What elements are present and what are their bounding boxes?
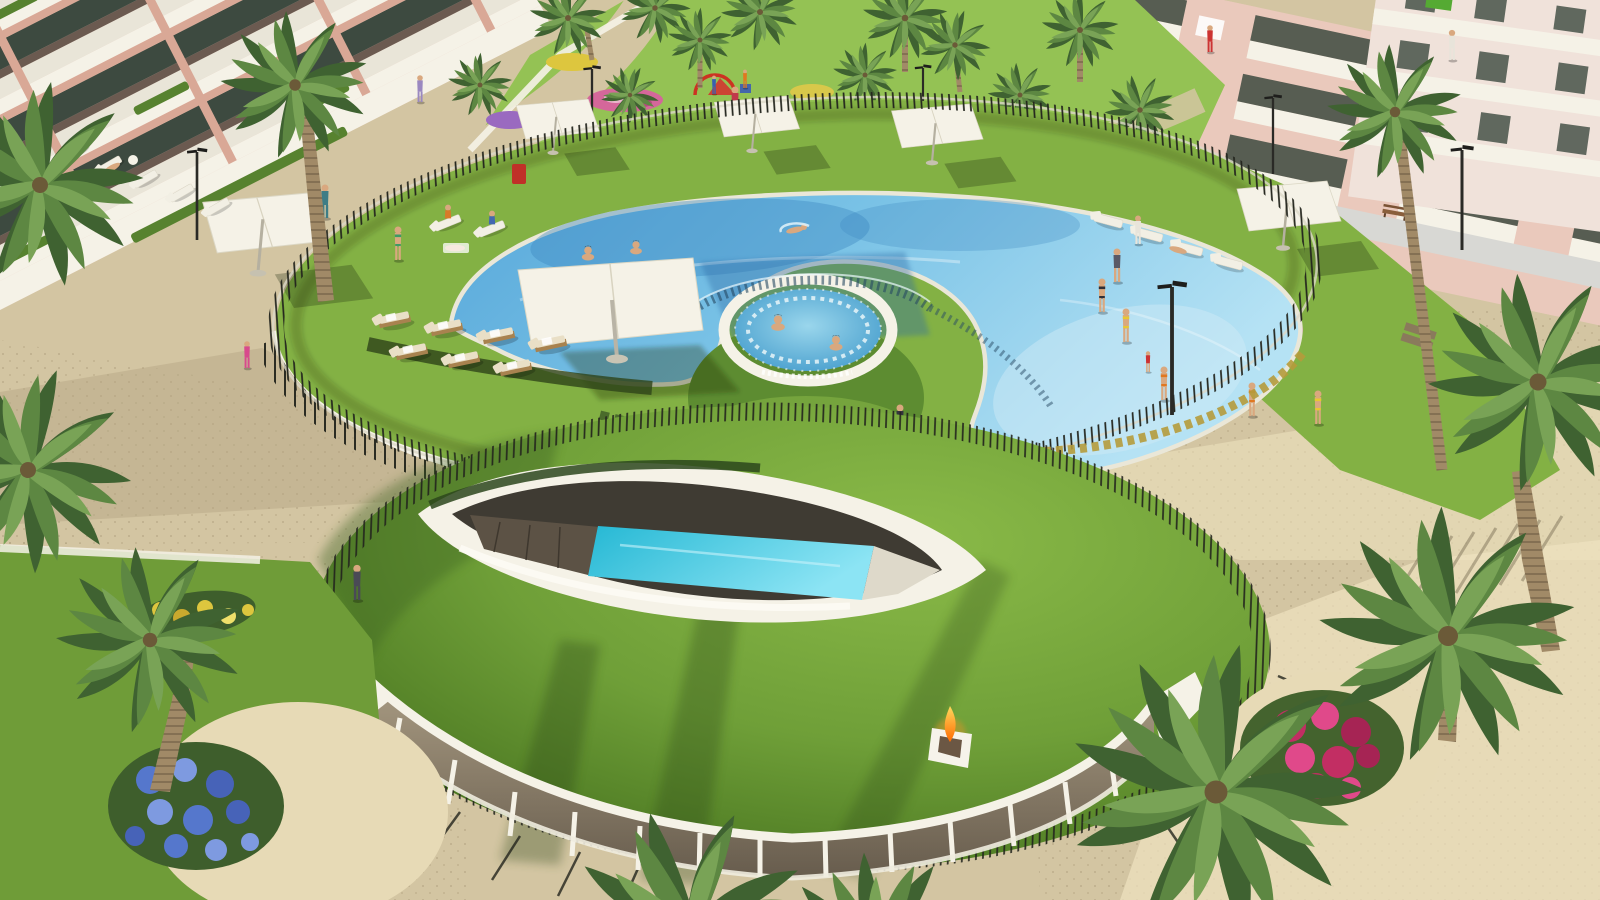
- canopy-base: [606, 355, 628, 364]
- spa-pool: [724, 279, 892, 381]
- resort-render-canvas: [0, 0, 1600, 900]
- water-reflection: [840, 199, 1080, 251]
- side-table: [128, 155, 138, 165]
- beach-towel: [443, 243, 469, 253]
- hydrangea-bed: [108, 742, 284, 870]
- waste-bin: [512, 164, 526, 184]
- rendered-scene: Aerial 3D architectural rendering of a r…: [0, 0, 1600, 900]
